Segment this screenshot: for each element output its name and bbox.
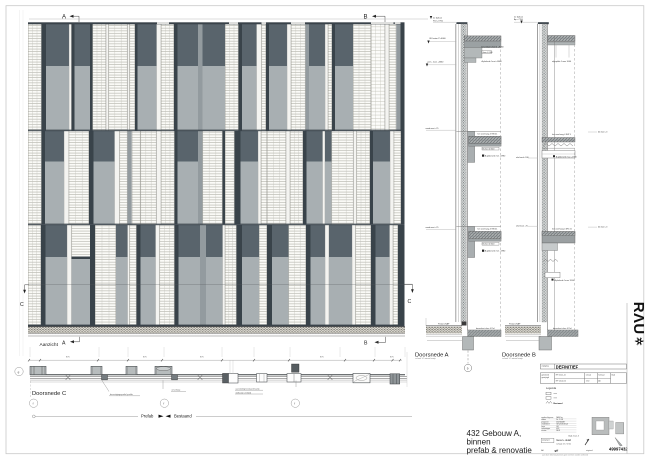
svg-text:bovenkant vloer 0 Peil: bovenkant vloer 0 Peil bbox=[476, 327, 495, 330]
svg-text:prefab & renovatie: prefab & renovatie bbox=[467, 446, 533, 455]
svg-text:bk vloer +3: bk vloer +3 bbox=[598, 226, 607, 229]
svg-text:A0: A0 bbox=[598, 380, 600, 383]
svg-text:A:plafond 4 met +2980: A:plafond 4 met +2980 bbox=[485, 155, 506, 158]
svg-text:A:plafond 4 met +8060: A:plafond 4 met +8060 bbox=[482, 60, 503, 63]
svg-text:2e balkon: 2e balkon bbox=[433, 18, 443, 20]
svg-text:B:vloer 4 t300: B:vloer 4 t300 bbox=[483, 243, 495, 246]
svg-text:aansluiting bestaand kozijn: aansluiting bestaand kozijn bbox=[236, 388, 260, 391]
svg-text:Peil=0 ±NAP: Peil=0 ±NAP bbox=[509, 323, 521, 326]
svg-text:B: B bbox=[364, 340, 368, 346]
svg-text:oeverloop: oeverloop bbox=[172, 390, 182, 392]
svg-text:A:plafond 4 met +2980: A:plafond 4 met +2980 bbox=[485, 250, 506, 253]
svg-text:formaat: formaat bbox=[598, 373, 605, 376]
svg-text:f: f bbox=[33, 401, 34, 405]
svg-text:gewijzigd: gewijzigd bbox=[542, 377, 549, 379]
svg-text:schaal 1:5 / 1:50: schaal 1:5 / 1:50 bbox=[556, 443, 572, 445]
svg-text:bovenkant vloer 4 +9060: bovenkant vloer 4 +9060 bbox=[482, 45, 505, 48]
svg-text:OK beton P+6060: OK beton P+6060 bbox=[429, 37, 446, 40]
svg-text:bk vloer +3: bk vloer +3 bbox=[598, 130, 607, 133]
svg-text:aan deze tekening kunnen geen: aan deze tekening kunnen geen rechten wo… bbox=[542, 453, 588, 456]
svg-text:afgeplakt 4 max 1000: afgeplakt 4 max 1000 bbox=[552, 60, 572, 63]
svg-text:whd mast +75: whd mast +75 bbox=[516, 224, 528, 227]
svg-text:blad: blad bbox=[612, 374, 615, 376]
svg-text:bevestigingsprofiel prefab: bevestigingsprofiel prefab bbox=[110, 393, 134, 396]
svg-text:vloer 4 t300: vloer 4 t300 bbox=[483, 51, 493, 54]
svg-text:Gevel + detail: Gevel + detail bbox=[556, 439, 571, 442]
svg-text:Aanzicht: Aanzicht bbox=[40, 342, 59, 348]
svg-text:Doorsnede B: Doorsnede B bbox=[502, 353, 536, 359]
svg-text:f: f bbox=[294, 401, 295, 405]
svg-text:1:50: 1:50 bbox=[586, 381, 590, 383]
svg-text:B:vloer 4 t300: B:vloer 4 t300 bbox=[483, 148, 495, 151]
svg-text:whd rand +180: whd rand +180 bbox=[516, 156, 529, 159]
svg-text:A:plafond 4 max 1990: A:plafond 4 max 1990 bbox=[555, 279, 575, 282]
svg-text:C: C bbox=[408, 299, 412, 305]
svg-text:wijziging: wijziging bbox=[542, 365, 549, 367]
svg-text:het overhang 4 SW 41: het overhang 4 SW 41 bbox=[478, 228, 499, 231]
svg-text:C: C bbox=[20, 302, 24, 308]
svg-text:Prefab: Prefab bbox=[141, 414, 154, 419]
svg-text:Bestaand: Bestaand bbox=[554, 402, 564, 405]
svg-text:RΛU: RΛU bbox=[630, 302, 647, 335]
svg-text:RP 14-02-12: RP 14-02-12 bbox=[556, 381, 566, 383]
svg-text:A: A bbox=[62, 341, 66, 347]
svg-text:bovenkant vloer 0 Peil: bovenkant vloer 0 Peil bbox=[553, 327, 572, 330]
svg-text:het overhang 4 MV 41: het overhang 4 MV 41 bbox=[552, 227, 573, 230]
svg-text:blad 4 van 4: blad 4 van 4 bbox=[569, 435, 579, 437]
svg-text:wand mast +25: wand mast +25 bbox=[426, 226, 439, 229]
svg-text:Bestaand: Bestaand bbox=[174, 414, 192, 419]
svg-text:wand mast +25: wand mast +25 bbox=[426, 127, 439, 130]
svg-text:Doorsnede C: Doorsnede C bbox=[32, 391, 66, 397]
svg-text:het overhang 4 SW 41: het overhang 4 SW 41 bbox=[478, 133, 499, 136]
svg-text:status: status bbox=[541, 429, 546, 432]
svg-text:getekend: getekend bbox=[542, 373, 549, 376]
svg-text:Doorsnede A: Doorsnede A bbox=[415, 353, 449, 359]
svg-text:Legenda: Legenda bbox=[546, 386, 557, 390]
svg-text:origineel: origineel bbox=[586, 450, 593, 452]
svg-text:Peil +7700: Peil +7700 bbox=[433, 20, 444, 22]
svg-text:het overhang 4 SW 3: het overhang 4 SW 3 bbox=[552, 133, 572, 136]
svg-text:gif: gif bbox=[555, 449, 559, 453]
svg-text:2e balkon: 2e balkon bbox=[514, 16, 524, 18]
svg-text:A: A bbox=[62, 15, 66, 21]
svg-text:49997432: 49997432 bbox=[609, 446, 628, 451]
svg-text:B: B bbox=[364, 15, 368, 21]
svg-text:stelkozijn verlijmd: stelkozijn verlijmd bbox=[236, 391, 252, 394]
svg-text:wijzigingen: wijzigingen bbox=[542, 439, 550, 441]
svg-text:peil + kast +4360: peil + kast +4360 bbox=[428, 61, 445, 64]
svg-text:DEFINITIEF: DEFINITIEF bbox=[556, 364, 579, 369]
svg-text:schaal: schaal bbox=[586, 374, 592, 376]
svg-text:RP 22-11-11: RP 22-11-11 bbox=[556, 374, 566, 376]
svg-text:Peil=0 ±NAP: Peil=0 ±NAP bbox=[438, 323, 450, 326]
